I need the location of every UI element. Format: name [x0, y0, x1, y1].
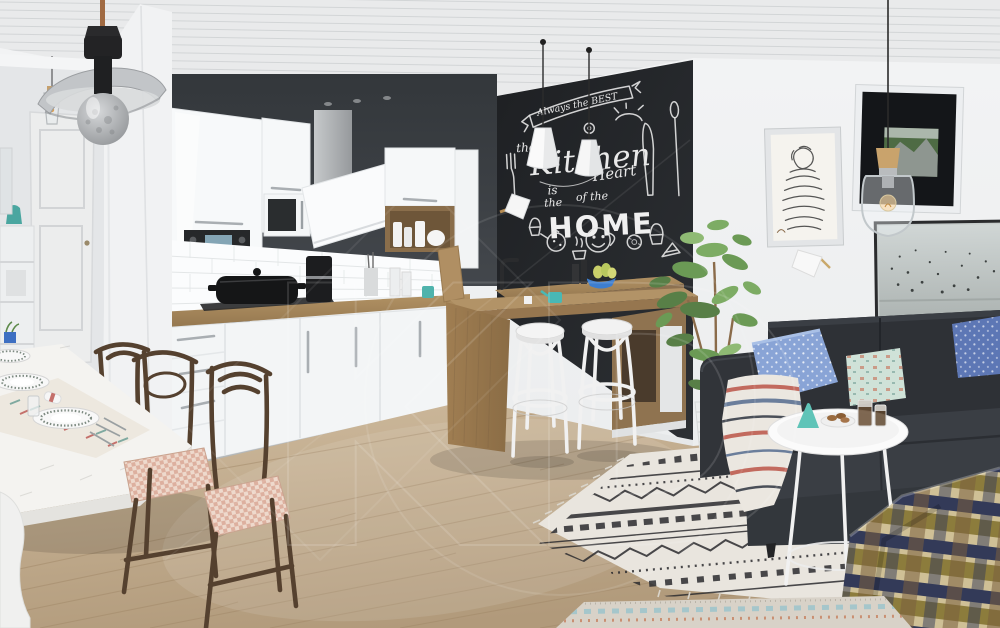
upper-cabinet-right	[385, 148, 455, 206]
door-knob	[84, 240, 89, 245]
back-room-mirror	[0, 148, 12, 214]
chalk-word-the2: the	[544, 196, 563, 210]
drinking-glass-small	[875, 405, 886, 426]
watermark: KD	[165, 140, 797, 628]
chalk-word-ofthe: of the	[576, 189, 609, 204]
drinking-glass	[858, 400, 872, 426]
interior-scene: Always the BEST the Kitchen is the Heart…	[0, 0, 1000, 628]
water-glass	[28, 396, 39, 416]
interior-photo: Always the BEST the Kitchen is the Heart…	[0, 0, 1000, 628]
blue-flower-pot	[4, 332, 16, 343]
watermark-text: KD	[255, 211, 797, 628]
lamp-glass-globe	[77, 93, 129, 145]
back-room-door	[30, 112, 94, 366]
